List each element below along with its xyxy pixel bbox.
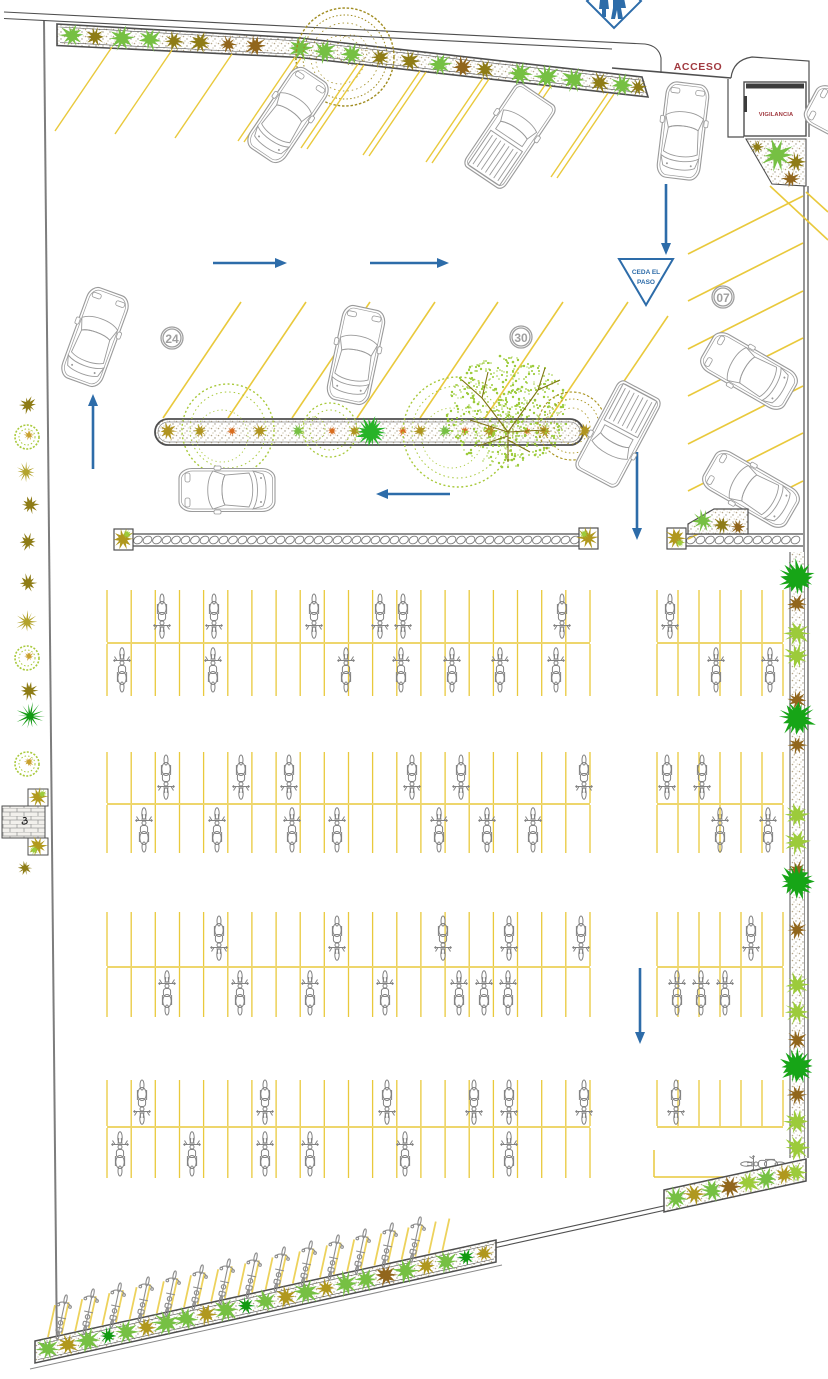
svg-text:VIGILANCIA: VIGILANCIA <box>759 112 794 118</box>
svg-text:30: 30 <box>514 331 528 345</box>
svg-text:ACCESO: ACCESO <box>674 61 723 73</box>
svg-text:07: 07 <box>716 291 730 305</box>
svg-text:PASO: PASO <box>637 279 655 286</box>
svg-text:CEDA EL: CEDA EL <box>632 269 660 276</box>
svg-text:24: 24 <box>165 332 179 346</box>
